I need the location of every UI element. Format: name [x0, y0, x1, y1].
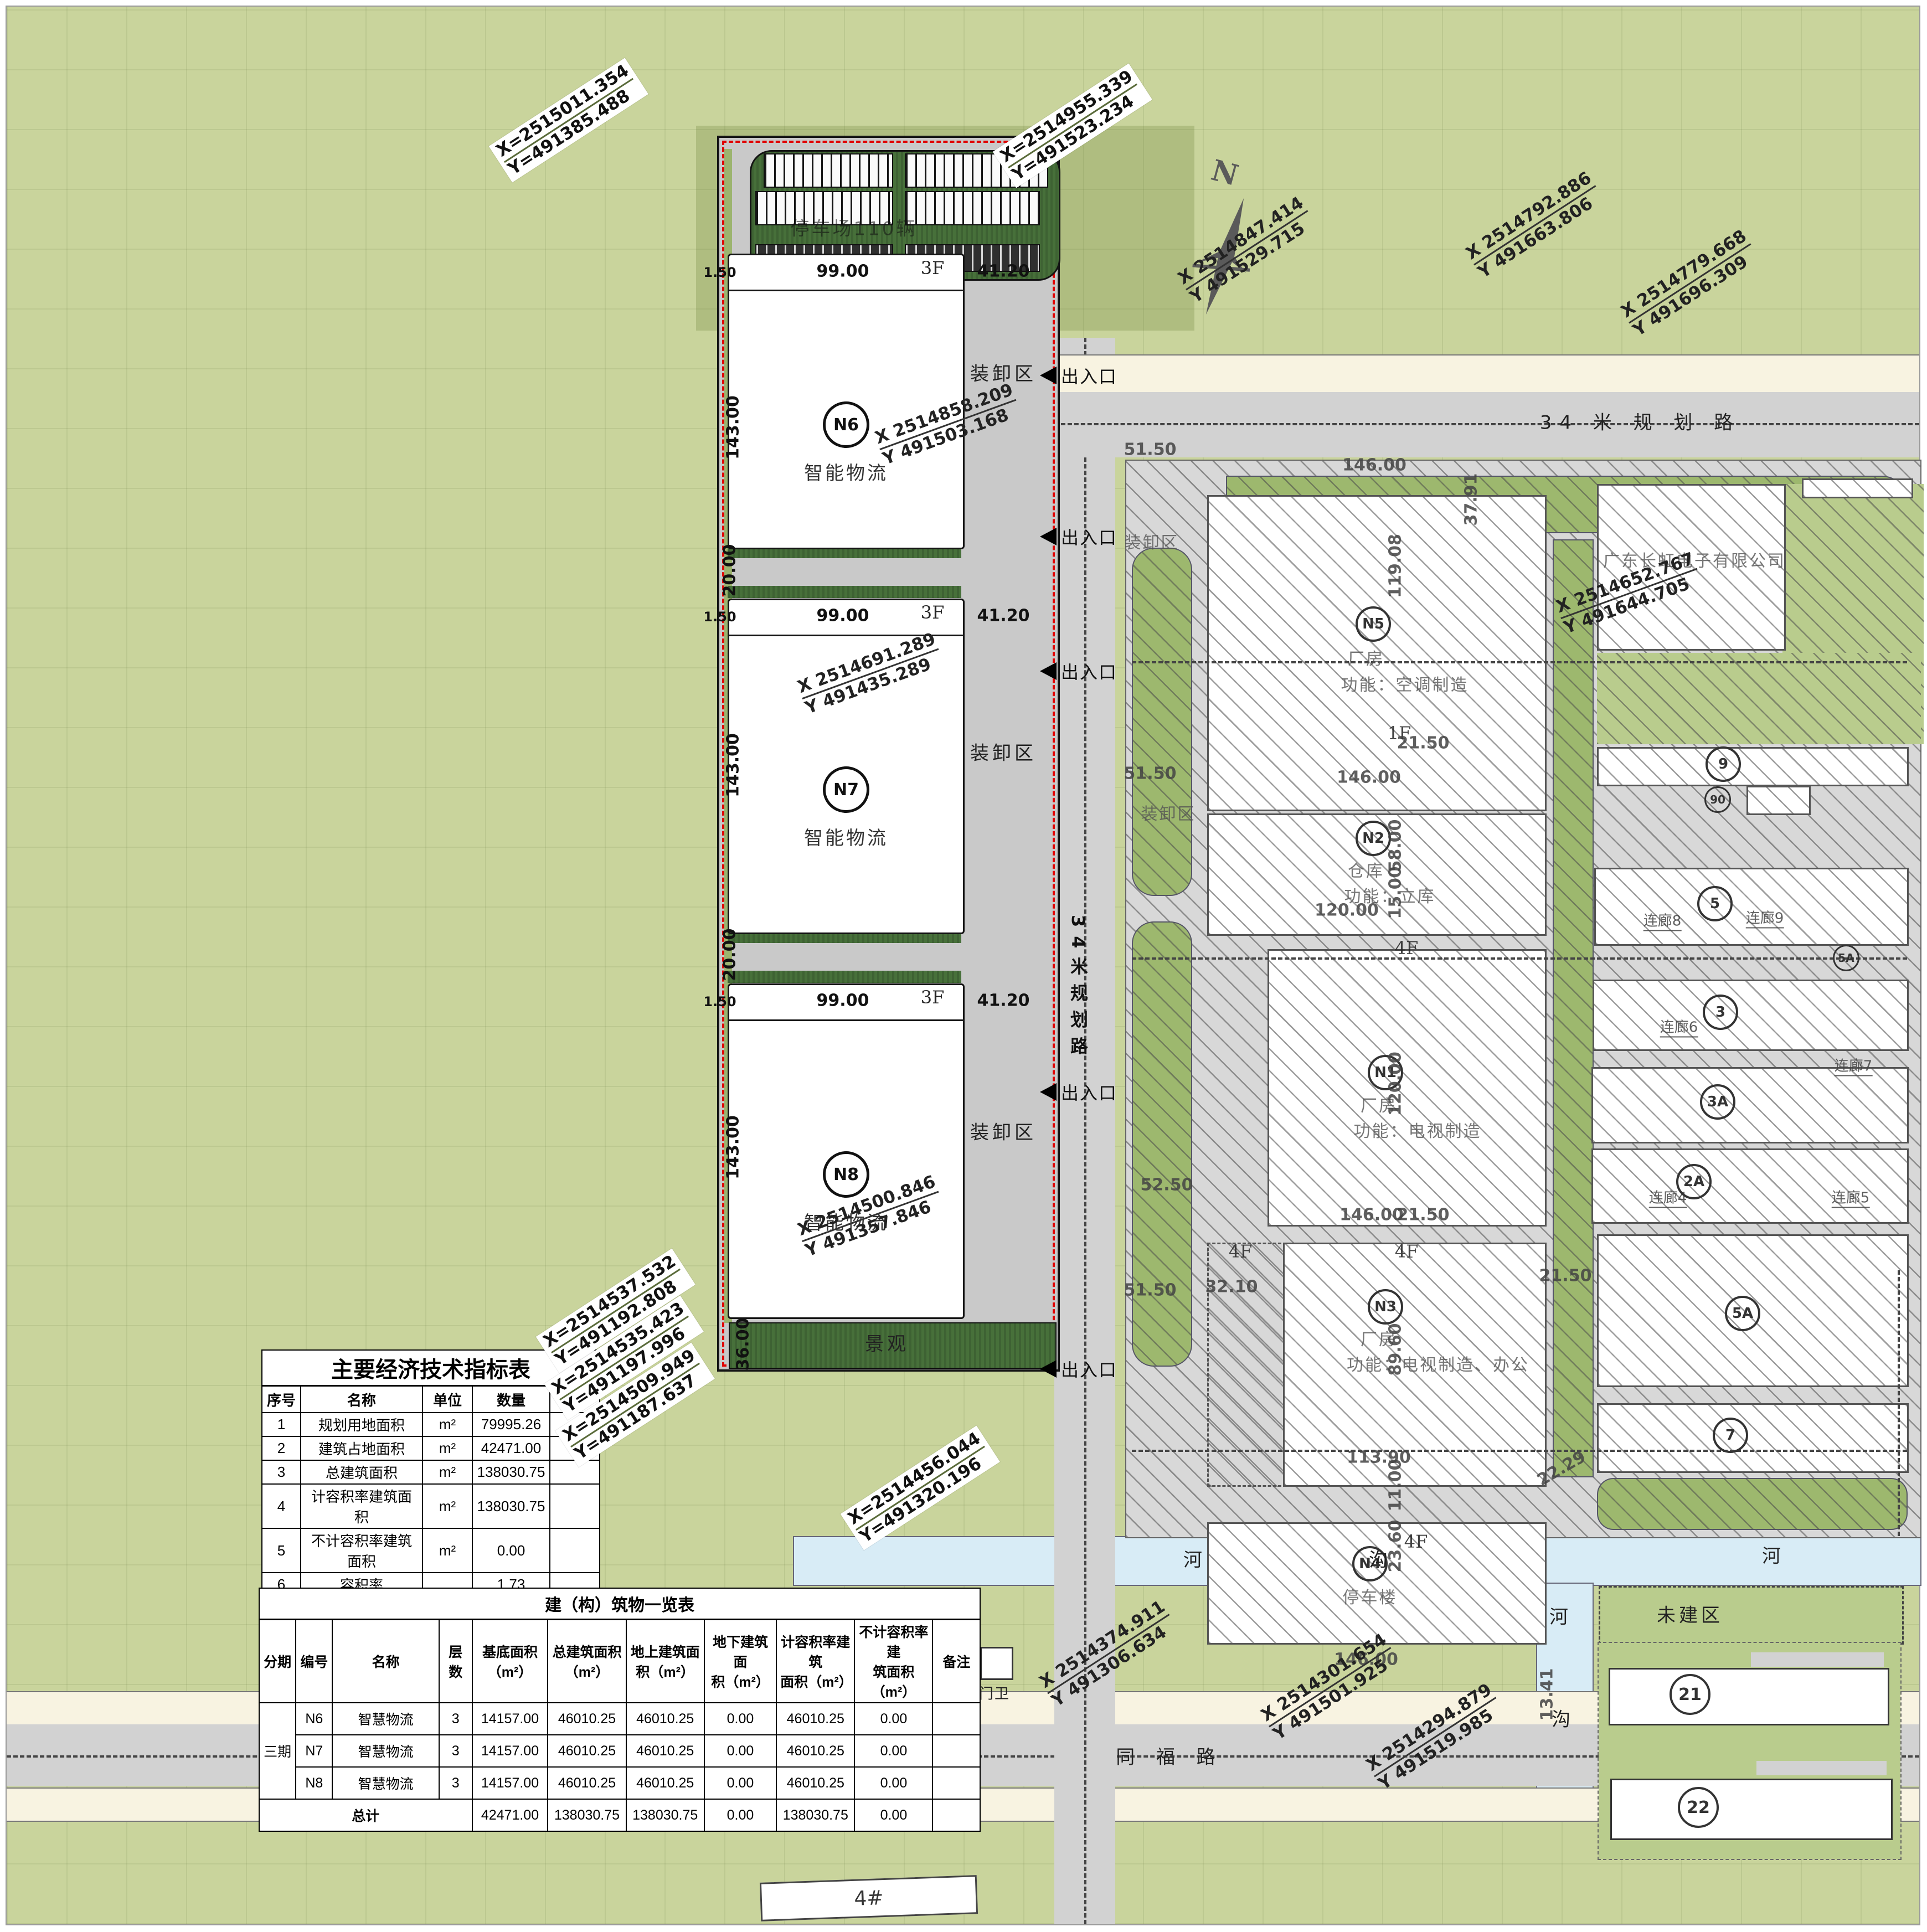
building-table-value: 0.00 [854, 1767, 932, 1799]
slab-5 [1594, 868, 1909, 946]
building-22 [1610, 1779, 1893, 1840]
indicator-table-header: 名称 [301, 1386, 423, 1413]
indicator-table-value: m² [423, 1460, 472, 1484]
building-table-header: 备注 [932, 1620, 980, 1703]
indicator-table-value: 计容积率建筑面积 [301, 1484, 423, 1528]
indicator-table-value: m² [423, 1484, 472, 1528]
building-table-value: 智慧物流 [332, 1703, 439, 1735]
north-compass: N [1181, 156, 1269, 323]
coordinate-x: X=2514537.532 [540, 1251, 681, 1353]
building-table-value: 0.00 [704, 1735, 776, 1767]
building-table-header: 总建筑面积 （m²） [548, 1620, 626, 1703]
compound-road-centerline-2 [1132, 957, 1907, 960]
building-table-value [932, 1703, 980, 1735]
building-table-value: 智慧物流 [332, 1767, 439, 1799]
n7-name-label: 智能物流 [804, 823, 888, 850]
coordinate-y: Y=491320.196 [856, 1453, 985, 1547]
indicator-table-value: 138030.75 [472, 1460, 550, 1484]
building-n4 [1207, 1522, 1547, 1645]
indicator-table-value: 138030.75 [472, 1484, 550, 1528]
compound-road-centerline-3 [1132, 1450, 1907, 1452]
building-table-total-value: 0.00 [704, 1799, 776, 1831]
building-table-value: 智慧物流 [332, 1735, 439, 1767]
dimension-label: 146.00 [1334, 1650, 1398, 1670]
compound-road-centerline-v [1898, 1270, 1900, 1536]
gap-grass-2b [728, 971, 961, 983]
building-table-header: 分期 [259, 1620, 296, 1703]
building-table-value: 46010.25 [548, 1767, 626, 1799]
indicator-table-value: 不计容积率建筑面积 [301, 1528, 423, 1573]
building-table-value: 0.00 [704, 1767, 776, 1799]
coordinate-callout: X 2514792.886Y 491663.806 [1462, 168, 1607, 283]
building-n6: N6 智能物流 [728, 254, 965, 549]
building-4: 4# [760, 1875, 978, 1921]
building-table-value: 46010.25 [776, 1735, 854, 1767]
n6-header-line [729, 290, 963, 291]
building-changhong [1597, 484, 1786, 651]
indicator-table-value: 79995.26 [472, 1413, 550, 1436]
gatehouse [980, 1647, 1013, 1680]
building-n2 [1207, 813, 1547, 936]
building-table-value [932, 1735, 980, 1767]
east-compound [1125, 460, 1921, 1538]
compound-green-band-mid [1553, 539, 1594, 1477]
building-table-value [932, 1767, 980, 1799]
indicator-table-header: 序号 [262, 1386, 301, 1413]
parking-stalls-row2b [905, 191, 1040, 225]
small-block-topright [1802, 478, 1913, 498]
building-table-value: N7 [296, 1735, 332, 1767]
indicator-table-value [550, 1460, 600, 1484]
indicator-table-value [550, 1413, 600, 1436]
coordinate-y: Y=491385.488 [504, 85, 633, 179]
building-table-value: 46010.25 [776, 1703, 854, 1735]
building-table-value: 3 [439, 1767, 472, 1799]
slab-3a [1591, 1067, 1909, 1143]
building-table-value: 14157.00 [472, 1767, 548, 1799]
n8-name-label: 智能物流 [804, 1208, 888, 1235]
slab-3 [1593, 980, 1909, 1051]
building-table-total-value: 138030.75 [776, 1799, 854, 1831]
slab-5a [1597, 1234, 1909, 1387]
coordinate-y: Y 491696.309 [1630, 251, 1751, 340]
indicator-table-header: 数量 [472, 1386, 550, 1413]
top-road-centerline [1054, 423, 1919, 425]
parking-stalls-row1b [905, 153, 1048, 188]
n6-name-label: 智能物流 [804, 458, 888, 485]
building-n1 [1268, 949, 1547, 1227]
indicator-table-value: m² [423, 1436, 472, 1460]
building-list-table: 建（构）筑物一览表分期编号名称层数基底面积 （m²）总建筑面积 （m²）地上建筑… [259, 1588, 981, 1832]
compound-green-strip-left1 [1132, 548, 1192, 896]
building-table-header: 地上建筑面 积（m²） [626, 1620, 704, 1703]
indicator-table-value: 0.00 [472, 1528, 550, 1573]
building-table-header: 计容积率建筑 面积（m²） [776, 1620, 854, 1703]
indicator-table-value: 1 [262, 1413, 301, 1436]
parking-stalls-row1a [764, 153, 893, 188]
slab-9 [1597, 747, 1909, 786]
building-table-value: 46010.25 [626, 1767, 704, 1799]
building-table-header: 基底面积 （m²） [472, 1620, 548, 1703]
compound-lawn-mid [1597, 653, 1921, 744]
coordinate-x: X=2514456.044 [844, 1429, 985, 1530]
building-table-value: 3 [439, 1703, 472, 1735]
slab-7 [1597, 1403, 1909, 1473]
building-n5 [1207, 495, 1547, 811]
building-table-value: 0.00 [704, 1703, 776, 1735]
compound-green-strip-bottom [1597, 1478, 1908, 1530]
indicator-table-value [550, 1528, 600, 1573]
building-table-value: 46010.25 [626, 1703, 704, 1735]
building-table-total-value: 138030.75 [548, 1799, 626, 1831]
landscape-strip [729, 1322, 1057, 1369]
building-table-header: 层数 [439, 1620, 472, 1703]
building-4-label: 4# [854, 1887, 884, 1910]
coordinate-x: X 2514779.668 [1617, 226, 1751, 323]
building-table-value: 3 [439, 1735, 472, 1767]
coordinate-callout: X=2514456.044Y=491320.196 [841, 1425, 1001, 1550]
unbuilt-zone [1599, 1586, 1904, 1645]
indicator-table-value: 总建筑面积 [301, 1460, 423, 1484]
indicator-table-header: 备注 [550, 1386, 600, 1413]
coordinate-x: X=2515011.354 [493, 61, 633, 162]
coordinate-callout: X 2514779.668Y 491696.309 [1617, 226, 1763, 341]
indicator-table-value [550, 1484, 600, 1528]
building-table-header: 编号 [296, 1620, 332, 1703]
top-road-sidewalk [1054, 354, 1919, 393]
n8-circle-label: N8 [823, 1151, 869, 1198]
building-table-value: 46010.25 [776, 1767, 854, 1799]
vertical-road-centerline [1084, 338, 1086, 1924]
coordinate-x: X 2514792.886 [1462, 168, 1596, 265]
building-table-header: 名称 [332, 1620, 439, 1703]
plan-background: 34米规划路 [6, 6, 1920, 1925]
building-table-total-value: 138030.75 [626, 1799, 704, 1831]
parking-stalls-row2a [755, 191, 893, 225]
building-table-total-value: 42471.00 [472, 1799, 548, 1831]
site-plan-canvas: 34米规划路 [0, 0, 1927, 1932]
building-table-value: 46010.25 [626, 1735, 704, 1767]
n8-header-line [729, 1019, 963, 1021]
indicator-table-header: 单位 [423, 1386, 472, 1413]
parking-strip-22 [1756, 1761, 1887, 1775]
building-table-value: 0.00 [854, 1703, 932, 1735]
indicator-table-value: 2 [262, 1436, 301, 1460]
building-table-phase: 三期 [259, 1703, 296, 1799]
coordinate-y: Y 491663.806 [1475, 193, 1596, 282]
indicator-table-value: 4 [262, 1484, 301, 1528]
building-table-value: 14157.00 [472, 1703, 548, 1735]
building-n8: N8 智能物流 [728, 983, 965, 1319]
indicator-table-value: 42471.00 [472, 1436, 550, 1460]
building-table-total-value: 0.00 [854, 1799, 932, 1831]
building-table-value: 0.00 [854, 1735, 932, 1767]
building-table-value: N6 [296, 1703, 332, 1735]
indicator-table-value: m² [423, 1413, 472, 1436]
building-table-total-value [932, 1799, 980, 1831]
slab-90 [1746, 786, 1811, 815]
n7-header-line [729, 635, 963, 636]
coordinate-callout: X=2515011.354Y=491385.488 [489, 58, 649, 182]
building-table-header: 地下建筑面 积（m²） [704, 1620, 776, 1703]
n6-circle-label: N6 [823, 401, 869, 448]
building-n7: N7 智能物流 [728, 599, 965, 934]
indicator-table-value: 5 [262, 1528, 301, 1573]
indicator-table-value: 建筑占地面积 [301, 1436, 423, 1460]
compound-green-strip-left2 [1132, 921, 1192, 1367]
building-table-value: 46010.25 [548, 1735, 626, 1767]
n7-circle-label: N7 [823, 766, 869, 813]
building-table-title: 建（构）筑物一览表 [259, 1588, 980, 1620]
building-table-el: 建（构）筑物一览表分期编号名称层数基底面积 （m²）总建筑面积 （m²）地上建筑… [259, 1588, 981, 1832]
slab-2a [1591, 1148, 1909, 1224]
building-table-total-label: 总计 [259, 1799, 472, 1831]
building-table-header: 不计容积率建 筑面积（m²） [854, 1620, 932, 1703]
indicator-table-value [550, 1436, 600, 1460]
building-table-value: 46010.25 [548, 1703, 626, 1735]
compound-road-centerline-1 [1132, 661, 1907, 663]
building-21 [1609, 1668, 1889, 1725]
project-site: N6 智能物流 N7 智能物流 N8 智能物流 [717, 136, 1060, 1372]
indicator-table-value: 3 [262, 1460, 301, 1484]
indicator-table-value: 规划用地面积 [301, 1413, 423, 1436]
building-table-value: 14157.00 [472, 1735, 548, 1767]
compass-star-icon [1173, 183, 1277, 329]
gap-grass-1b [728, 586, 961, 598]
parking-strip-21 [1751, 1652, 1884, 1667]
indicator-table-value: m² [423, 1528, 472, 1573]
indicator-table-title: 主要经济技术指标表 [262, 1350, 600, 1386]
vertical-road-label: 34米规划路 [1065, 915, 1091, 1064]
building-table-value: N8 [296, 1767, 332, 1799]
